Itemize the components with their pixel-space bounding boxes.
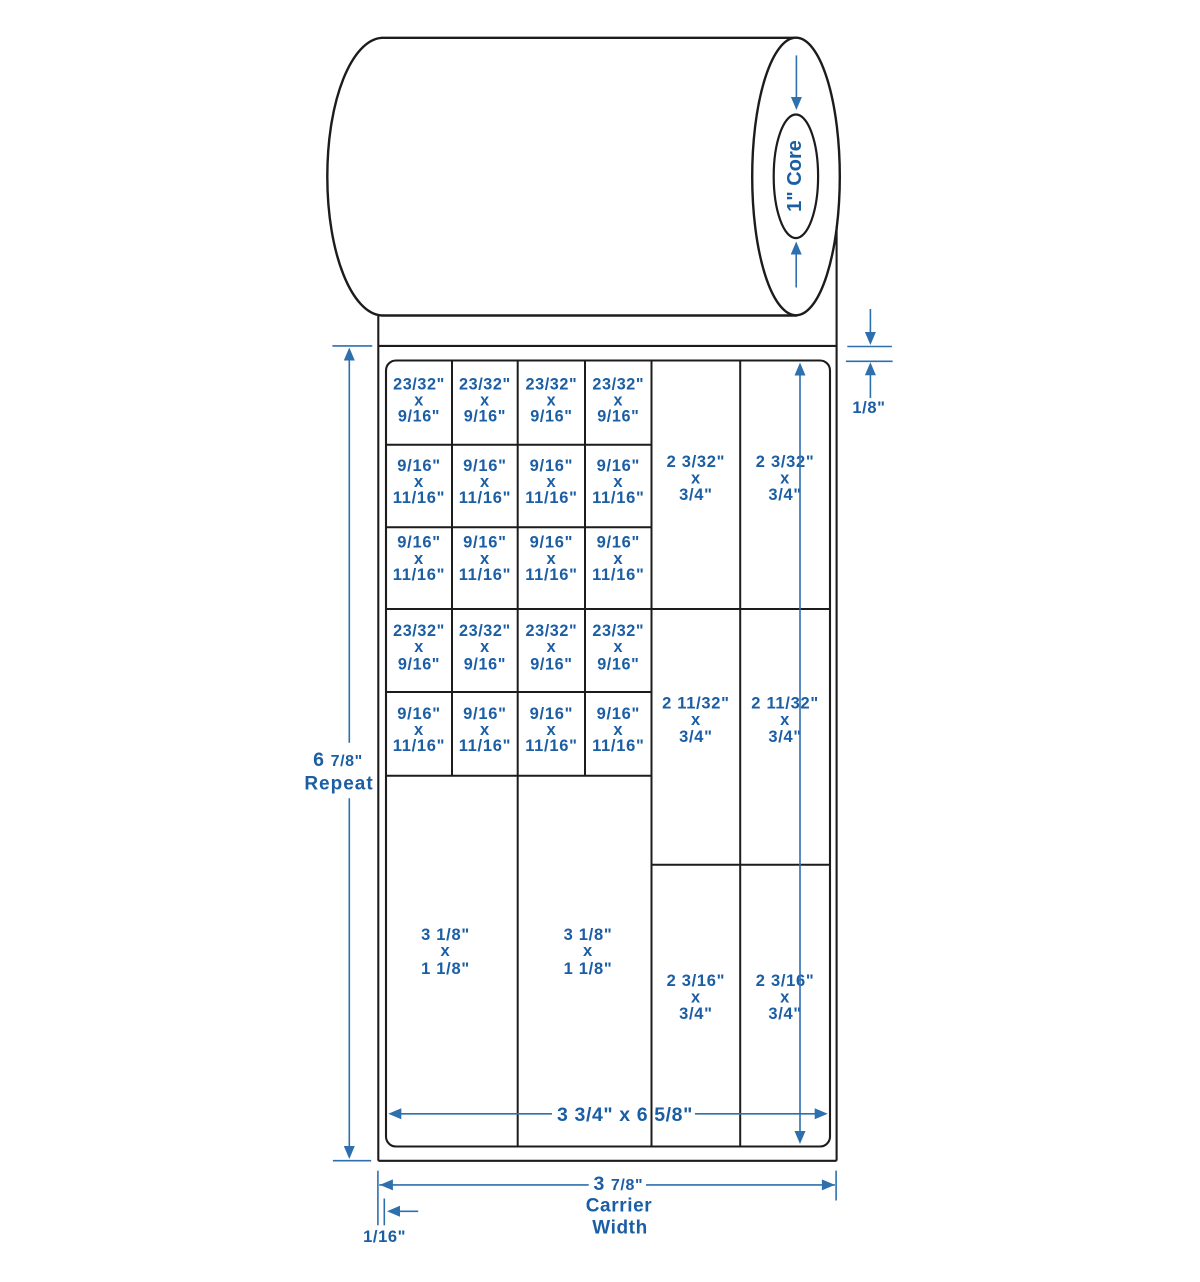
svg-text:x: x bbox=[691, 470, 701, 488]
svg-text:x: x bbox=[414, 638, 424, 656]
svg-text:11/16": 11/16" bbox=[459, 489, 511, 507]
svg-text:11/16": 11/16" bbox=[592, 489, 644, 507]
svg-text:x: x bbox=[613, 638, 623, 656]
svg-text:2 3/16": 2 3/16" bbox=[756, 972, 815, 990]
svg-text:9/16": 9/16" bbox=[597, 656, 639, 674]
svg-text:23/32": 23/32" bbox=[526, 375, 578, 393]
svg-text:11/16": 11/16" bbox=[592, 566, 644, 584]
svg-text:9/16": 9/16" bbox=[397, 534, 440, 552]
svg-text:2 11/32": 2 11/32" bbox=[662, 695, 730, 713]
svg-text:3/4": 3/4" bbox=[679, 1005, 713, 1023]
svg-text:6 7/8": 6 7/8" bbox=[313, 749, 363, 771]
svg-text:11/16": 11/16" bbox=[592, 737, 644, 755]
svg-text:11/16": 11/16" bbox=[525, 489, 577, 507]
svg-text:1/8": 1/8" bbox=[852, 399, 885, 417]
svg-text:11/16": 11/16" bbox=[393, 566, 445, 584]
svg-text:9/16": 9/16" bbox=[530, 408, 572, 426]
svg-text:Repeat: Repeat bbox=[304, 774, 373, 795]
svg-text:9/16": 9/16" bbox=[597, 534, 640, 552]
svg-text:11/16": 11/16" bbox=[525, 566, 577, 584]
svg-text:Width: Width bbox=[592, 1217, 648, 1238]
svg-text:x: x bbox=[780, 989, 790, 1007]
svg-text:2 3/32": 2 3/32" bbox=[667, 453, 726, 471]
svg-text:9/16": 9/16" bbox=[464, 656, 506, 674]
svg-text:3/4": 3/4" bbox=[679, 486, 713, 504]
svg-text:9/16": 9/16" bbox=[597, 408, 639, 426]
svg-text:2 11/32": 2 11/32" bbox=[751, 695, 819, 713]
svg-text:9/16": 9/16" bbox=[530, 534, 573, 552]
svg-text:x: x bbox=[691, 711, 701, 729]
svg-text:9/16": 9/16" bbox=[463, 534, 506, 552]
svg-text:x: x bbox=[480, 638, 490, 656]
svg-text:23/32": 23/32" bbox=[592, 375, 644, 393]
svg-text:3 7/8": 3 7/8" bbox=[593, 1173, 643, 1195]
svg-text:1 1/8": 1 1/8" bbox=[564, 960, 613, 978]
svg-text:1" Core: 1" Core bbox=[784, 140, 806, 212]
svg-text:11/16": 11/16" bbox=[393, 489, 445, 507]
svg-text:x: x bbox=[547, 638, 557, 656]
svg-text:23/32": 23/32" bbox=[459, 375, 511, 393]
svg-text:9/16": 9/16" bbox=[398, 656, 440, 674]
svg-text:9/16": 9/16" bbox=[464, 408, 506, 426]
svg-text:1/16": 1/16" bbox=[363, 1228, 406, 1246]
svg-text:3/4": 3/4" bbox=[679, 728, 713, 746]
svg-text:1 1/8": 1 1/8" bbox=[421, 960, 470, 978]
svg-text:11/16": 11/16" bbox=[393, 737, 445, 755]
svg-text:x: x bbox=[583, 942, 593, 960]
svg-text:9/16": 9/16" bbox=[530, 656, 572, 674]
svg-text:11/16": 11/16" bbox=[525, 737, 577, 755]
svg-text:2 3/16": 2 3/16" bbox=[667, 972, 726, 990]
svg-text:3/4": 3/4" bbox=[768, 728, 802, 746]
svg-text:11/16": 11/16" bbox=[459, 737, 511, 755]
svg-text:x: x bbox=[441, 942, 451, 960]
svg-text:2 3/32": 2 3/32" bbox=[756, 453, 815, 471]
svg-text:3 3/4" x 6 5/8": 3 3/4" x 6 5/8" bbox=[557, 1104, 693, 1126]
svg-text:3/4": 3/4" bbox=[768, 1005, 802, 1023]
svg-text:3/4": 3/4" bbox=[768, 486, 802, 504]
svg-text:11/16": 11/16" bbox=[459, 566, 511, 584]
svg-text:23/32": 23/32" bbox=[393, 375, 445, 393]
svg-text:9/16": 9/16" bbox=[398, 408, 440, 426]
svg-text:x: x bbox=[780, 711, 790, 729]
svg-text:Carrier: Carrier bbox=[586, 1195, 653, 1216]
svg-text:x: x bbox=[780, 470, 790, 488]
svg-text:x: x bbox=[691, 989, 701, 1007]
